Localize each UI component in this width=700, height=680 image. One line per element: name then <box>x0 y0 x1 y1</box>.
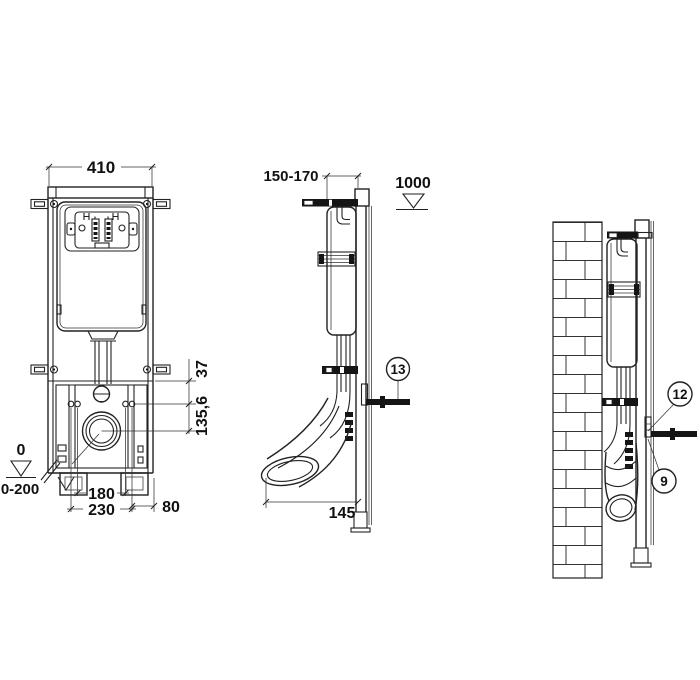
front-view: 410 <box>1 158 211 519</box>
callout-9-label: 9 <box>660 474 668 489</box>
flush-pipe-front <box>88 331 118 384</box>
access-panel <box>65 207 139 251</box>
wc-frame-installation-diagram: 410 <box>0 0 700 680</box>
frame-rails <box>48 198 153 473</box>
callout-12-label: 12 <box>672 387 687 402</box>
side-rail <box>351 189 372 532</box>
cistern-front <box>57 202 146 331</box>
callout-12: 12 <box>648 382 692 431</box>
fixing-spacing-label: 230 <box>88 502 115 519</box>
inspection-box <box>318 252 355 266</box>
installed-inspection-box <box>608 282 640 297</box>
flush-rod-guides <box>92 217 112 242</box>
side-view: 150-170 1000 <box>259 168 431 532</box>
floor-level-symbol: 0 0-200 <box>1 442 39 498</box>
hook-right <box>113 213 118 220</box>
installed-rail <box>631 220 654 567</box>
panel-height-symbol: 1000 <box>395 175 431 210</box>
outlet-center-label: 135,6 <box>194 396 211 436</box>
flush-outlet <box>94 386 110 402</box>
flush-pipe-side <box>320 335 358 441</box>
waste-elbow-side <box>259 398 352 490</box>
waste-outlet <box>72 412 121 464</box>
hook-left <box>84 213 89 220</box>
middle-wall-brackets <box>31 365 170 374</box>
edge-offset-label: 80 <box>162 499 180 516</box>
bracket-offset-label: 37 <box>194 360 211 378</box>
callout-9: 9 <box>648 439 676 493</box>
depth-range-label: 150-170 <box>263 168 318 185</box>
brick-wall <box>553 222 602 578</box>
floor-level-zero: 0 <box>17 442 26 459</box>
frame-top-plate <box>48 187 153 198</box>
adjust-range-label: 0-200 <box>1 481 39 498</box>
break-mark <box>41 460 60 483</box>
edge-offset-dimension: 80 <box>129 478 180 516</box>
installed-fill-pipe <box>617 239 628 256</box>
installed-waste-elbow <box>603 443 638 524</box>
bolt-spacing-label: 180 <box>88 486 115 503</box>
width-dimension: 410 <box>46 158 156 186</box>
drawing-canvas: 410 <box>0 0 700 680</box>
width-dim-label: 410 <box>87 158 115 177</box>
installed-flush-pipe <box>602 367 638 469</box>
depth-dimension: 150-170 <box>263 168 361 199</box>
outlet-depth-label: 145 <box>329 505 356 522</box>
installed-anchor-rod <box>645 417 697 440</box>
outlet-depth-dimension: 145 <box>263 478 361 522</box>
cistern-side <box>318 207 356 336</box>
callout-13: 13 <box>387 358 410 400</box>
installed-cistern <box>607 239 640 367</box>
water-supply-bar <box>302 199 358 207</box>
installed-view: 12 9 <box>553 220 697 578</box>
panel-height-label: 1000 <box>395 175 431 192</box>
fill-valve-pipe <box>337 207 350 225</box>
callout-13-label: 13 <box>390 362 406 377</box>
